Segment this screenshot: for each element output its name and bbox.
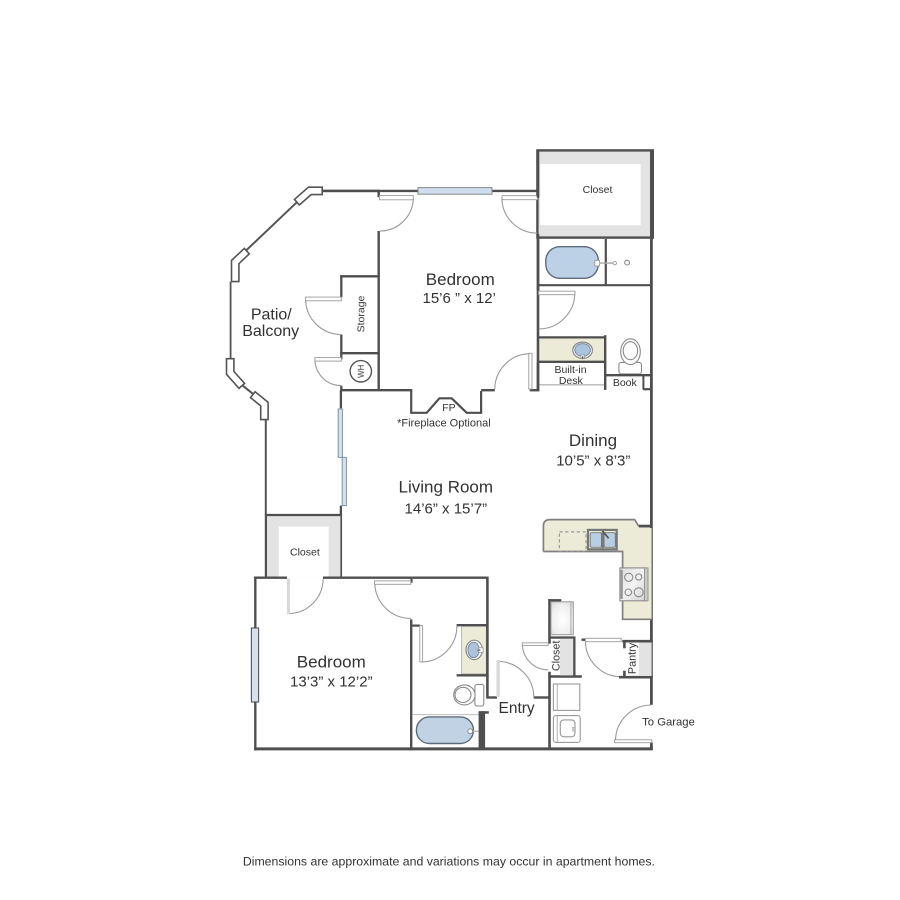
- svg-text:Closet: Closet: [583, 184, 613, 196]
- svg-text:WH: WH: [357, 364, 366, 378]
- svg-text:Bedroom: Bedroom: [426, 270, 495, 289]
- svg-text:Patio/: Patio/: [251, 307, 292, 324]
- svg-text:15’6 ” x 12’: 15’6 ” x 12’: [423, 290, 496, 307]
- svg-text:Dimensions are approximate and: Dimensions are approximate and variation…: [243, 854, 655, 868]
- svg-text:To Garage: To Garage: [642, 716, 695, 728]
- svg-text:Bedroom: Bedroom: [297, 653, 366, 672]
- svg-text:Storage: Storage: [355, 295, 367, 332]
- svg-text:14’6” x 15’7”: 14’6” x 15’7”: [405, 501, 488, 518]
- svg-text:Book: Book: [613, 377, 638, 389]
- svg-text:FP: FP: [442, 402, 455, 414]
- svg-text:Pantry: Pantry: [627, 642, 639, 674]
- svg-text:Balcony: Balcony: [242, 323, 299, 340]
- svg-text:Living Room: Living Room: [399, 478, 494, 497]
- svg-text:10’5” x 8’3”: 10’5” x 8’3”: [556, 453, 630, 470]
- svg-text:Entry: Entry: [499, 700, 535, 717]
- svg-text:*Fireplace Optional: *Fireplace Optional: [397, 417, 491, 429]
- svg-text:Closet: Closet: [551, 640, 563, 671]
- svg-text:Closet: Closet: [290, 546, 320, 558]
- svg-text:Dining: Dining: [569, 431, 617, 450]
- svg-text:Desk: Desk: [559, 375, 584, 387]
- svg-text:13’3” x 12’2”: 13’3” x 12’2”: [290, 673, 373, 690]
